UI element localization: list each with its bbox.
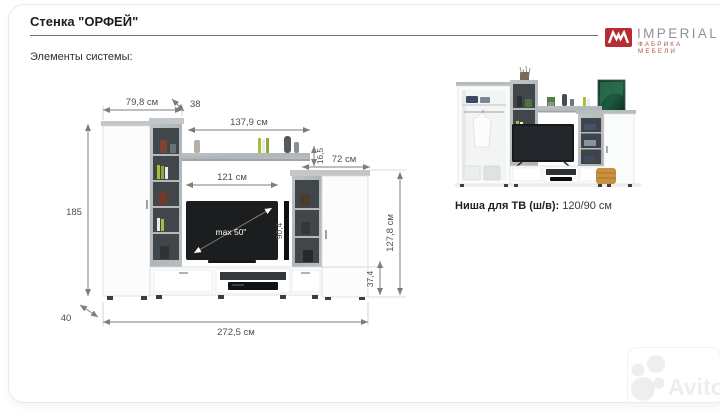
svg-text:121 см: 121 см [217, 172, 247, 183]
tv-size-label: max 50" [216, 227, 247, 237]
svg-text:40: 40 [61, 313, 72, 324]
avito-logo-icon [631, 355, 665, 401]
imperial-logo-icon [605, 28, 632, 47]
render-base [510, 166, 605, 184]
svg-text:72 см: 72 см [332, 154, 357, 165]
tv-niche-caption-value: 120/90 см [562, 200, 612, 212]
brand-tagline: ФАБРИКА МЕБЕЛИ [638, 41, 717, 55]
tv-stand-base [150, 267, 322, 295]
title-divider [30, 35, 598, 36]
avito-wordmark: Avito [668, 374, 720, 400]
tv-niche-caption: Ниша для ТВ (ш/в):120/90 см [455, 200, 612, 212]
svg-text:37,4: 37,4 [365, 271, 375, 288]
svg-text:90,4: 90,4 [274, 223, 284, 240]
brand-name: IMPERIAL [637, 26, 719, 41]
shelf-column-left [149, 118, 184, 267]
elements-label: Элементы системы: [30, 51, 133, 63]
technical-drawing: max 50" [22, 82, 422, 350]
render-wardrobe [456, 82, 512, 184]
svg-text:38: 38 [190, 99, 201, 110]
wicker-basket [596, 168, 616, 184]
svg-text:137,9 см: 137,9 см [230, 117, 268, 128]
render-tv [512, 124, 574, 166]
wall-shelf [182, 136, 310, 161]
product-render [450, 66, 706, 206]
hanging-shirt [473, 113, 491, 147]
imperial-logo: IMPERIAL ФАБРИКА МЕБЕЛИ [605, 26, 717, 52]
svg-text:272,5 см: 272,5 см [217, 327, 255, 338]
page-title: Стенка "ОРФЕЙ" [30, 14, 138, 29]
render-wall-shelf [538, 94, 602, 113]
svg-text:16,5: 16,5 [315, 148, 325, 165]
tv-niche-caption-label: Ниша для ТВ (ш/в): [455, 200, 559, 212]
svg-text:127,8 см: 127,8 см [385, 214, 396, 252]
wardrobe-left [101, 121, 153, 296]
svg-text:185: 185 [66, 207, 82, 218]
wall-art [598, 80, 625, 113]
svg-text:79,8 см: 79,8 см [126, 97, 158, 108]
avito-watermark: Avito [627, 347, 720, 407]
